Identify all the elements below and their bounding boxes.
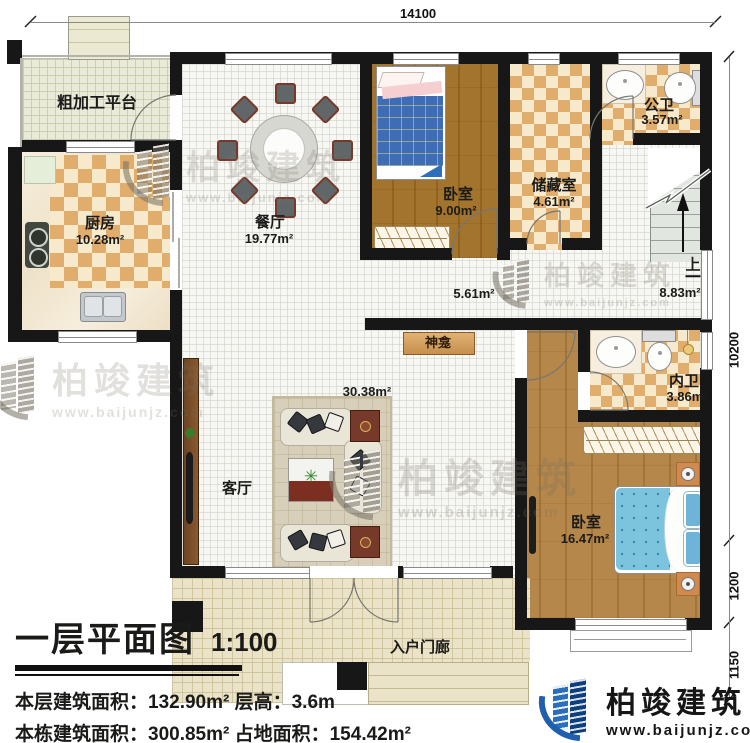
room-area-living: 30.38m² bbox=[343, 385, 391, 399]
watermark-logo-icon bbox=[0, 356, 44, 418]
room-area-hallway: 5.61m² bbox=[453, 287, 494, 301]
window bbox=[393, 53, 459, 65]
company-url: www.baijunjz.com bbox=[606, 722, 750, 739]
wall-bedroom2-bottom bbox=[685, 618, 712, 630]
bedroom2-wardrobe bbox=[583, 426, 702, 454]
wall bbox=[170, 52, 182, 95]
window bbox=[618, 53, 680, 65]
company-logo: 柏竣建筑 www.baijunjz.com bbox=[538, 678, 750, 740]
wall bbox=[170, 140, 182, 190]
window bbox=[528, 53, 560, 65]
wall bbox=[497, 248, 510, 260]
dimension-line-right bbox=[729, 57, 730, 700]
company-logo-icon bbox=[538, 679, 596, 739]
window-bay bbox=[570, 630, 692, 652]
wall-bedroom1-storage bbox=[498, 64, 510, 250]
dimension-line-top bbox=[30, 22, 716, 23]
burner-icon bbox=[29, 228, 48, 247]
plant-icon: ✳ bbox=[302, 468, 320, 486]
window bbox=[225, 53, 332, 65]
floor-plan-canvas: ✳ bbox=[0, 0, 750, 743]
wall-bedroom2-bottom bbox=[515, 618, 575, 630]
tv-icon bbox=[186, 452, 193, 524]
room-label-platform: 粗加工平台 bbox=[57, 95, 137, 113]
window-bay-line bbox=[574, 639, 686, 640]
toilet-icon bbox=[647, 342, 672, 371]
bed-plaid-blanket bbox=[377, 96, 443, 166]
room-label-storage: 储藏室 bbox=[531, 178, 576, 195]
title-underline bbox=[15, 665, 242, 671]
room-label-inner-bath: 内卫 bbox=[669, 374, 699, 391]
dim-right-main: 10200 bbox=[727, 332, 742, 368]
wall-storage-right bbox=[590, 64, 602, 250]
wall-innerbath-left bbox=[578, 330, 590, 372]
wall bbox=[170, 290, 182, 342]
room-area-kitchen: 10.28m² bbox=[76, 233, 124, 247]
dining-chair bbox=[217, 140, 238, 161]
bedroom1-wardrobe bbox=[374, 226, 450, 250]
room-label-bedroom2: 卧室 bbox=[571, 515, 601, 532]
wall-living-bottom bbox=[170, 566, 225, 578]
floor-area-line: 本层建筑面积：132.90m² 层高：3.6m bbox=[15, 687, 411, 714]
sink-basin bbox=[103, 296, 122, 317]
floor-drain-icon bbox=[683, 344, 694, 355]
fridge bbox=[24, 156, 56, 184]
plant-icon bbox=[185, 428, 195, 438]
innerbath-door-opening bbox=[578, 372, 590, 410]
side-table bbox=[350, 410, 380, 442]
wall bbox=[490, 566, 513, 578]
room-area-bedroom2: 16.47m² bbox=[561, 532, 609, 546]
toilet-tank bbox=[642, 330, 676, 342]
room-area-bedroom1: 9.00m² bbox=[435, 204, 476, 218]
wall-bedroom2-left bbox=[515, 378, 527, 618]
room-label-bedroom1: 卧室 bbox=[443, 187, 473, 204]
wall-living-left bbox=[170, 342, 182, 578]
title-block: 一层平面图 1:100 本层建筑面积：132.90m² 层高：3.6m 本栋建筑… bbox=[15, 612, 411, 743]
room-area-stair-hall: 8.83m² bbox=[659, 286, 700, 300]
plan-title: 一层平面图 bbox=[15, 612, 195, 661]
storage-floor bbox=[510, 64, 590, 250]
window bbox=[225, 567, 310, 579]
sink-icon bbox=[606, 70, 644, 100]
entry-sidelight-window bbox=[403, 567, 492, 579]
entry-door-opening bbox=[310, 566, 398, 578]
company-name: 柏竣建筑 bbox=[606, 687, 746, 720]
wall bbox=[510, 238, 527, 250]
dim-top-value: 14100 bbox=[400, 6, 436, 21]
bed-dot-blanket bbox=[616, 488, 670, 570]
room-area-inner-bath: 3.86m² bbox=[666, 390, 707, 404]
wall-left bbox=[8, 147, 22, 342]
dining-chair bbox=[275, 83, 296, 104]
title-underline-thin bbox=[15, 674, 239, 676]
window bbox=[58, 331, 137, 343]
wall-right bbox=[700, 368, 712, 630]
dim-right-bottom: 1150 bbox=[727, 651, 742, 679]
window bbox=[701, 250, 713, 320]
nightstand-lamp bbox=[676, 572, 700, 596]
side-table bbox=[350, 526, 380, 558]
platform-edge bbox=[20, 58, 22, 147]
room-label-living: 客厅 bbox=[222, 481, 252, 498]
wall-dining-bedroom1 bbox=[360, 64, 372, 260]
kitchen-door-opening bbox=[170, 190, 182, 290]
dim-right-mid: 1200 bbox=[727, 572, 742, 601]
room-area-dining: 19.77m² bbox=[245, 232, 293, 246]
burner-icon bbox=[29, 248, 48, 267]
bed-fold-corner bbox=[420, 164, 442, 177]
building-area-line: 本栋建筑面积：300.85m² 占地面积：154.42m² bbox=[15, 719, 411, 743]
platform-edge bbox=[22, 55, 172, 57]
nightstand-lamp bbox=[676, 462, 700, 486]
stairs-up-label: 上 bbox=[685, 257, 700, 277]
room-area-storage: 4.61m² bbox=[533, 195, 574, 209]
window bbox=[701, 332, 713, 370]
door-opening bbox=[170, 95, 182, 140]
tv-icon bbox=[529, 496, 536, 554]
sink-icon bbox=[596, 336, 636, 368]
plan-scale: 1:100 bbox=[211, 627, 278, 658]
dining-table-top bbox=[263, 128, 305, 170]
wall-innerbath-bottom bbox=[578, 410, 712, 422]
bedroom2-door-opening bbox=[515, 330, 527, 378]
room-label-kitchen: 厨房 bbox=[85, 216, 115, 233]
dining-chair bbox=[332, 140, 353, 161]
pass-through-window bbox=[66, 141, 135, 153]
shrine-label: 神龛 bbox=[425, 336, 451, 350]
room-area-public-bath: 3.57m² bbox=[641, 113, 682, 127]
room-label-dining: 餐厅 bbox=[255, 215, 285, 232]
wall-hall-bedroom2 bbox=[365, 318, 712, 330]
wall-right bbox=[700, 52, 712, 250]
wall-bedroom1-bottom bbox=[360, 248, 452, 260]
wall bbox=[562, 238, 602, 250]
sink-basin bbox=[84, 296, 103, 317]
